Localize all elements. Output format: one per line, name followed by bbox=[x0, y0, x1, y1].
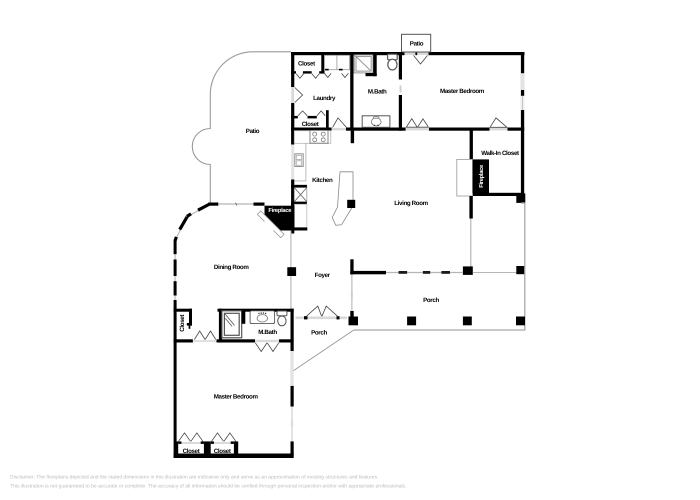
svg-text:Laundry: Laundry bbox=[313, 95, 336, 102]
svg-text:Porch: Porch bbox=[311, 330, 327, 337]
svg-text:Closet: Closet bbox=[302, 121, 319, 128]
svg-text:Living Room: Living Room bbox=[394, 200, 428, 207]
svg-text:Porch: Porch bbox=[423, 297, 439, 304]
svg-text:This illustration is not guara: This illustration is not guaranteed to b… bbox=[10, 484, 407, 490]
svg-text:Patio: Patio bbox=[246, 128, 260, 135]
svg-text:Disclaimer: The floorplans dep: Disclaimer: The floorplans depicted and … bbox=[10, 475, 379, 481]
svg-text:Walk-In Closet: Walk-In Closet bbox=[481, 150, 519, 157]
svg-text:Closet: Closet bbox=[179, 315, 186, 332]
svg-text:Master Bedroom: Master Bedroom bbox=[214, 393, 259, 400]
svg-text:Fireplace: Fireplace bbox=[268, 207, 292, 214]
svg-text:Closet: Closet bbox=[298, 61, 315, 68]
svg-text:Patio: Patio bbox=[410, 41, 424, 48]
svg-text:Foyer: Foyer bbox=[315, 272, 331, 279]
svg-text:Closet: Closet bbox=[183, 448, 200, 455]
svg-text:M.Bath: M.Bath bbox=[368, 88, 387, 95]
svg-text:Dining Room: Dining Room bbox=[214, 264, 249, 271]
svg-text:M.Bath: M.Bath bbox=[258, 329, 277, 336]
svg-text:Closet: Closet bbox=[214, 448, 231, 455]
svg-text:Master Bedroom: Master Bedroom bbox=[440, 88, 485, 95]
svg-text:Fireplace: Fireplace bbox=[478, 164, 485, 188]
svg-text:Kitchen: Kitchen bbox=[312, 177, 333, 184]
